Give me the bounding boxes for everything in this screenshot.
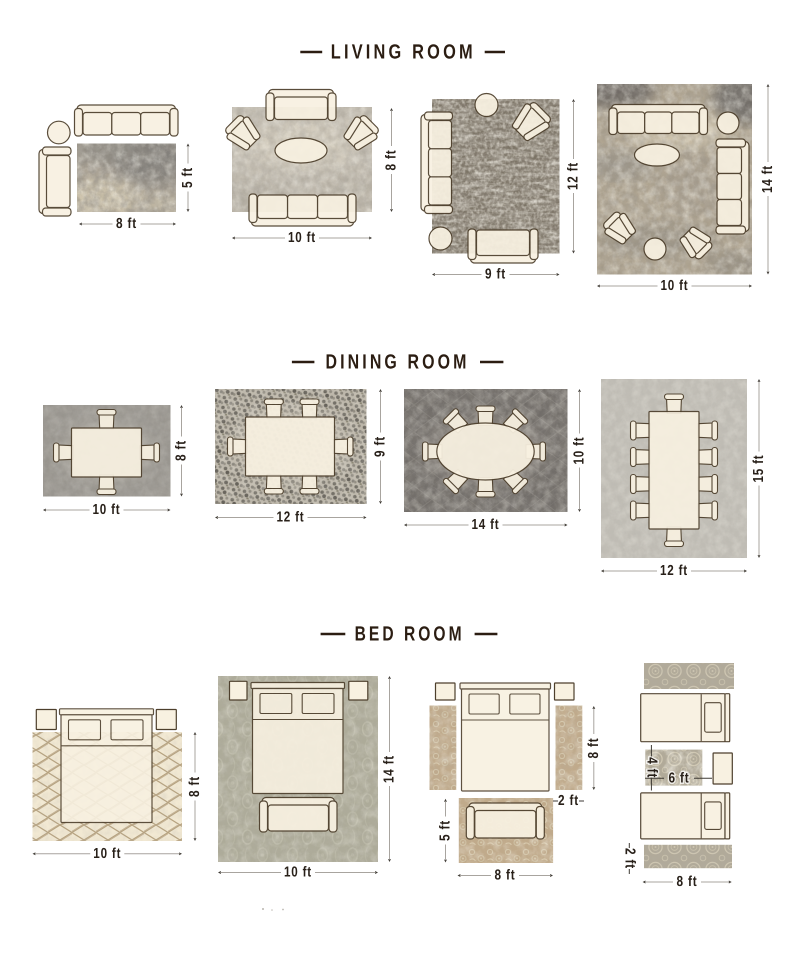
svg-text:2 ft: 2 ft — [558, 793, 579, 809]
svg-text:15 ft: 15 ft — [751, 455, 767, 483]
svg-text:14 ft: 14 ft — [760, 165, 776, 193]
svg-text:14 ft: 14 ft — [472, 517, 500, 533]
svg-text:8 ft: 8 ft — [384, 150, 400, 171]
svg-text:14 ft: 14 ft — [382, 755, 398, 783]
svg-text:12 ft: 12 ft — [566, 162, 582, 190]
svg-text:8 ft: 8 ft — [677, 874, 698, 890]
svg-text:DINING ROOM: DINING ROOM — [326, 351, 470, 374]
svg-text:10 ft: 10 ft — [572, 437, 588, 465]
svg-text:10 ft: 10 ft — [284, 865, 312, 881]
svg-text:2 ft: 2 ft — [621, 848, 637, 869]
svg-text:8 ft: 8 ft — [116, 216, 137, 232]
svg-text:9 ft: 9 ft — [373, 436, 389, 457]
svg-text:10 ft: 10 ft — [288, 230, 316, 246]
svg-text:8 ft: 8 ft — [187, 776, 203, 797]
svg-text:5 ft: 5 ft — [180, 167, 196, 188]
svg-text:LIVING ROOM: LIVING ROOM — [331, 41, 476, 64]
svg-text:12 ft: 12 ft — [277, 510, 305, 526]
svg-text:5 ft: 5 ft — [438, 820, 454, 841]
svg-text:9 ft: 9 ft — [485, 267, 506, 283]
svg-text:BED ROOM: BED ROOM — [355, 623, 465, 646]
svg-text:6 ft: 6 ft — [669, 770, 690, 786]
svg-text:10 ft: 10 ft — [661, 278, 689, 294]
svg-text:8 ft: 8 ft — [495, 868, 516, 884]
svg-text:10 ft: 10 ft — [93, 502, 121, 518]
svg-text:12 ft: 12 ft — [660, 563, 688, 579]
svg-text:4 ft: 4 ft — [643, 757, 659, 778]
svg-text:8 ft: 8 ft — [174, 440, 190, 461]
svg-text:10 ft: 10 ft — [93, 846, 121, 862]
svg-text:8 ft: 8 ft — [586, 738, 602, 759]
